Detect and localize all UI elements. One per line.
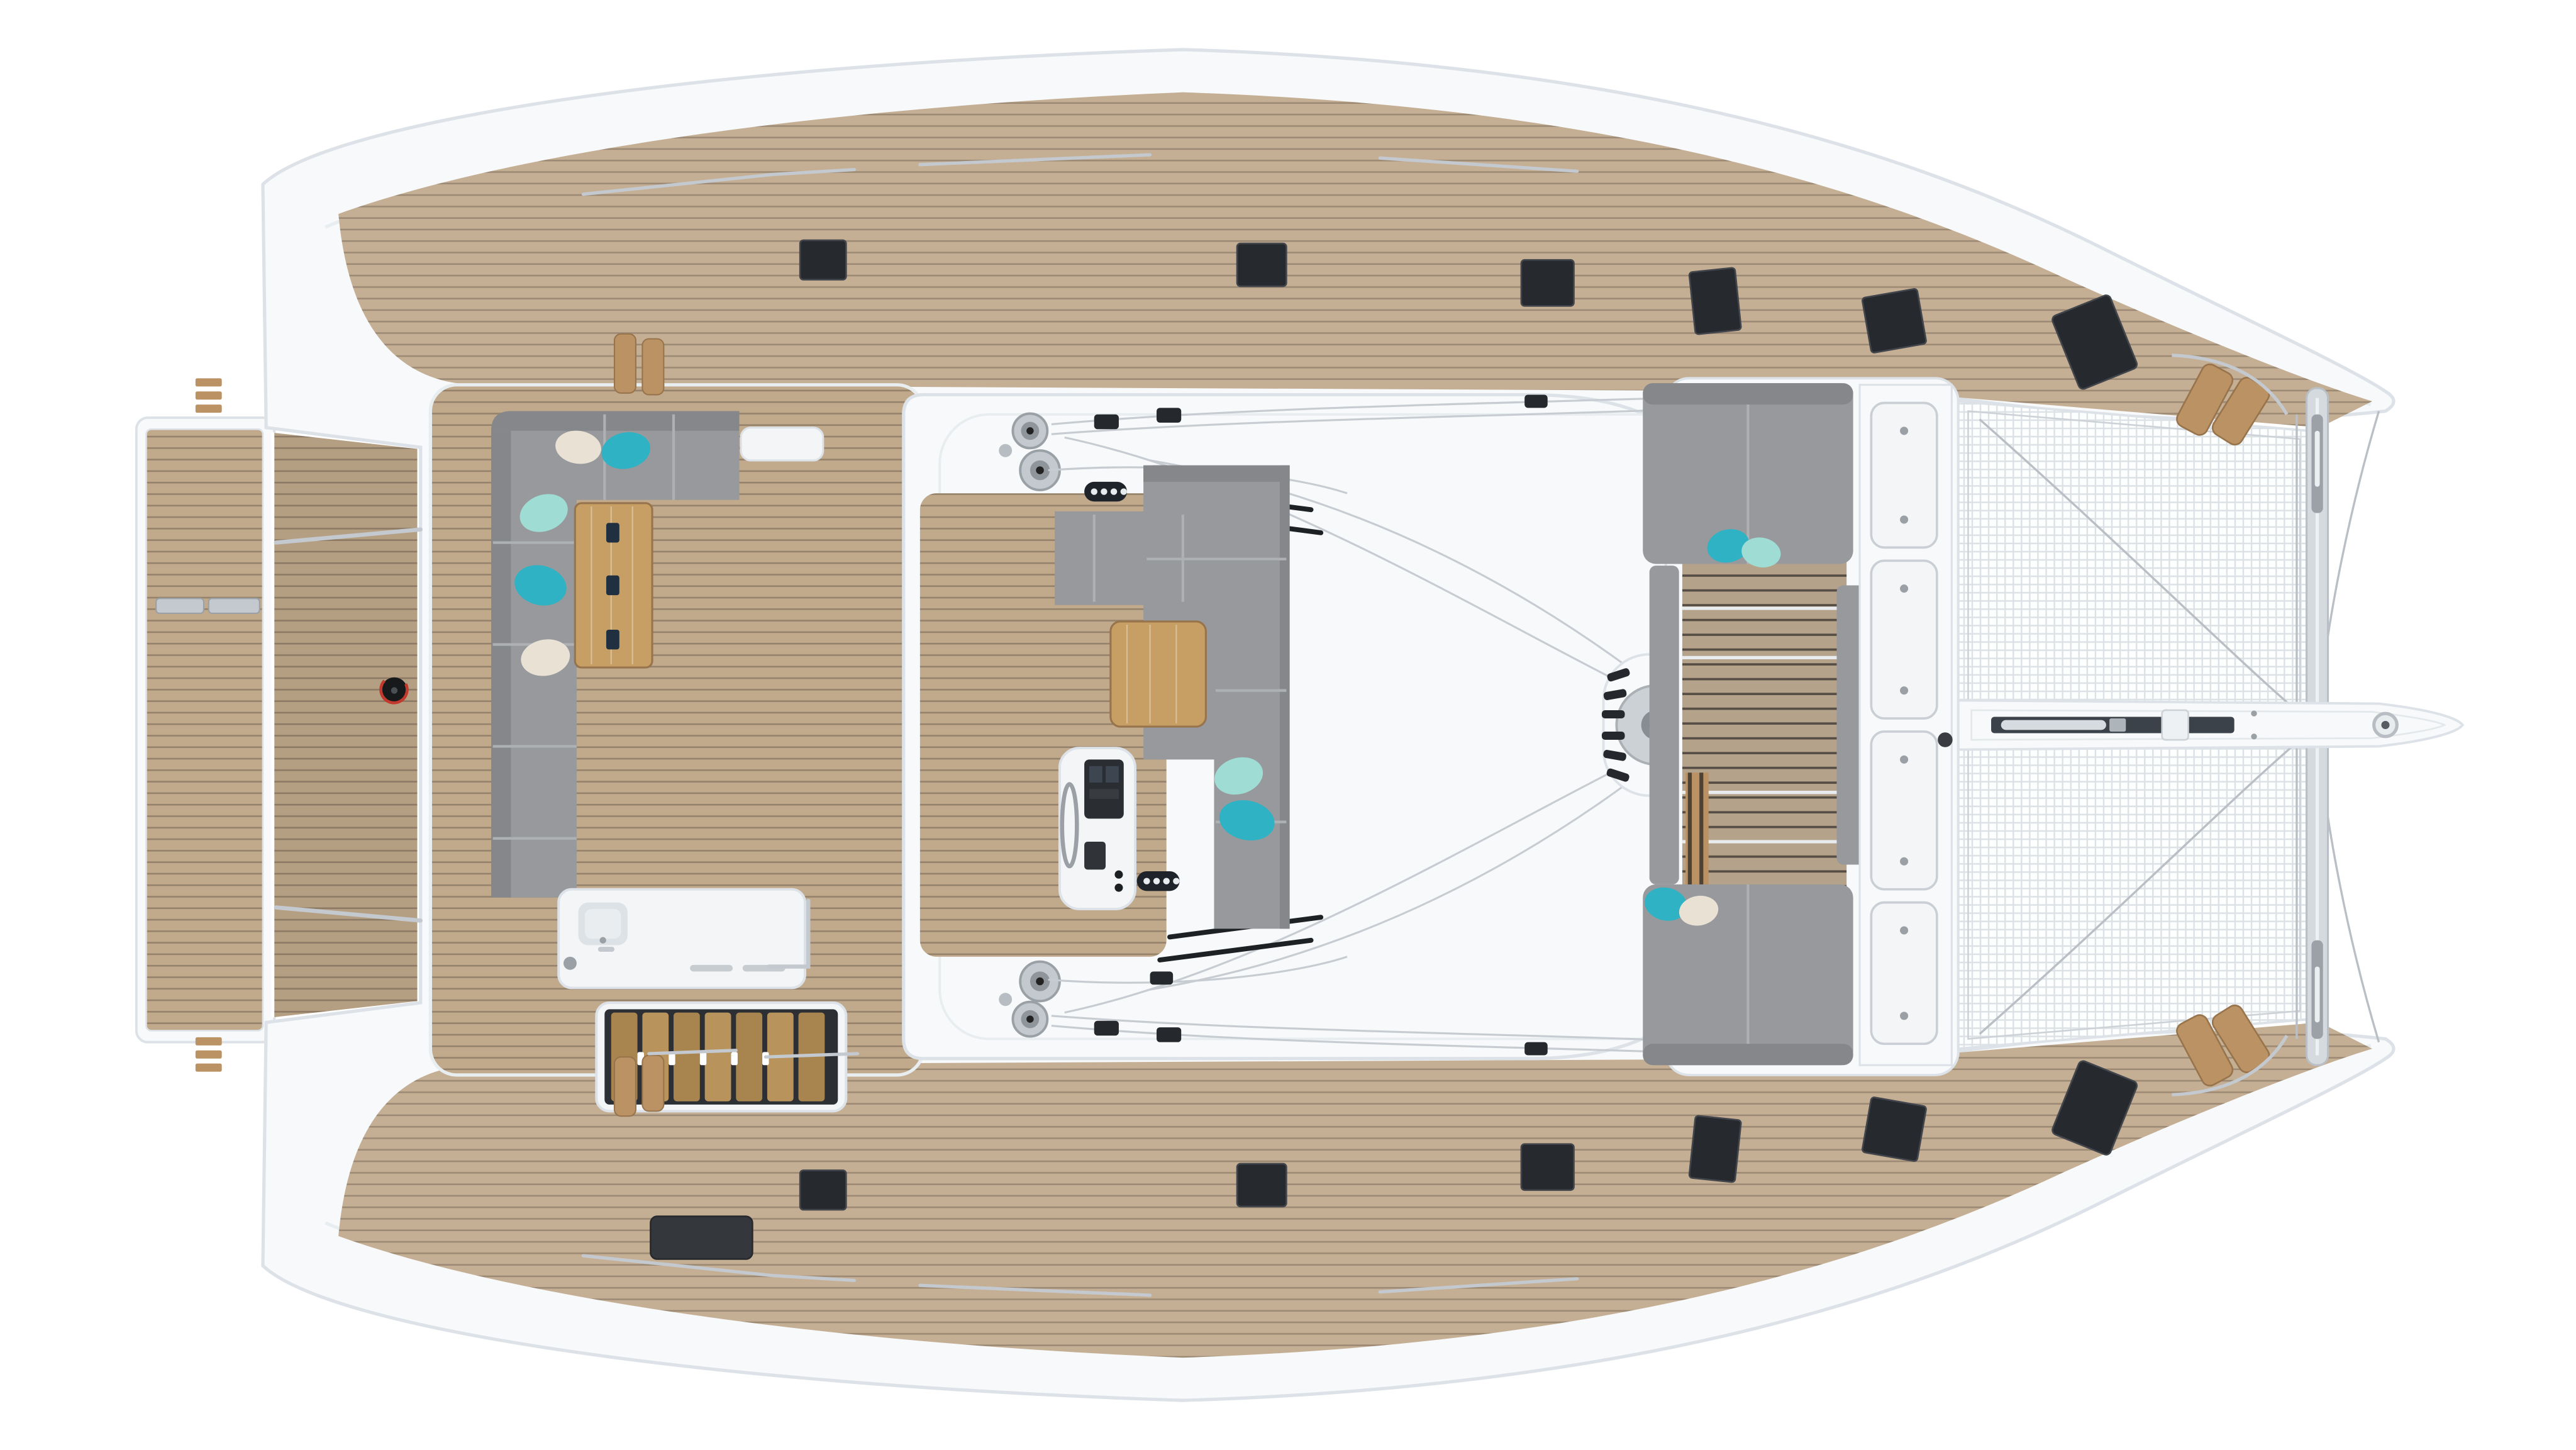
helm-station xyxy=(1060,748,1135,909)
wet-bar xyxy=(558,890,808,988)
cockpit-cabinet xyxy=(741,428,823,460)
winch xyxy=(1013,1002,1047,1037)
deck-lockers xyxy=(1860,385,1953,1065)
transom-deck xyxy=(271,433,417,1018)
catamaran-top-view: Catamaran sailing yacht — top view deck … xyxy=(0,0,2576,1450)
aft-cockpit xyxy=(430,385,923,1112)
liferaft-locker xyxy=(650,1217,752,1259)
bowsprit xyxy=(1958,700,2463,749)
deck-plan-stage: Catamaran sailing yacht — top view deck … xyxy=(0,0,2576,1450)
forward-cockpit xyxy=(1641,378,1958,1075)
winch xyxy=(1020,962,1060,1001)
cockpit-table xyxy=(575,503,652,667)
swim-platform xyxy=(136,418,274,1042)
flybridge-table xyxy=(1111,622,1206,727)
fuel-gauge xyxy=(381,678,408,704)
deck-fill-cap xyxy=(1938,732,1953,747)
forward-seat-top xyxy=(1643,383,1853,571)
forward-seat-bottom xyxy=(1641,884,1853,1066)
winch xyxy=(1013,413,1047,448)
forward-side-cushion xyxy=(1650,566,1679,884)
